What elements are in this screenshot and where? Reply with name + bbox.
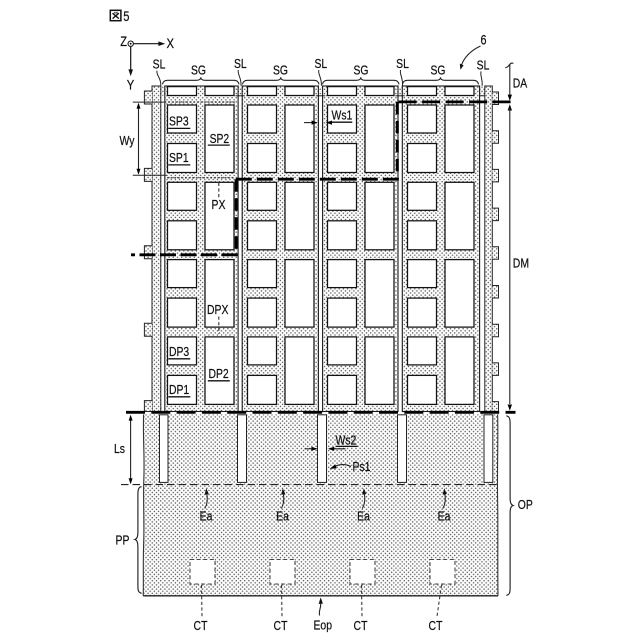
svg-text:5: 5 — [123, 8, 129, 24]
svg-text:PX: PX — [212, 197, 226, 212]
svg-text:CT: CT — [429, 618, 443, 633]
svg-text:CT: CT — [354, 618, 368, 633]
svg-text:SP1: SP1 — [169, 150, 189, 165]
svg-text:SL: SL — [153, 57, 166, 72]
svg-text:Ws2: Ws2 — [336, 432, 357, 447]
svg-text:SG: SG — [191, 63, 206, 78]
svg-text:Ps1: Ps1 — [353, 459, 371, 474]
svg-text:Ls: Ls — [114, 441, 125, 456]
svg-text:Ws1: Ws1 — [332, 108, 353, 123]
svg-text:SG: SG — [354, 63, 369, 78]
svg-text:SL: SL — [314, 56, 327, 71]
svg-text:Y: Y — [127, 77, 135, 93]
svg-text:SP2: SP2 — [210, 131, 230, 146]
svg-text:DP1: DP1 — [169, 382, 189, 397]
svg-text:DA: DA — [513, 76, 528, 91]
svg-text:SP3: SP3 — [169, 113, 189, 128]
svg-text:CT: CT — [274, 618, 288, 633]
svg-text:PP: PP — [116, 533, 130, 548]
svg-text:CT: CT — [194, 618, 208, 633]
svg-text:X: X — [167, 35, 175, 51]
svg-text:Ea: Ea — [438, 509, 451, 524]
svg-text:Ea: Ea — [357, 509, 370, 524]
svg-text:DM: DM — [513, 255, 529, 270]
svg-text:SL: SL — [477, 57, 490, 72]
svg-text:DPX: DPX — [207, 302, 229, 317]
svg-text:SL: SL — [234, 56, 247, 71]
svg-text:DP3: DP3 — [169, 344, 189, 359]
svg-text:OP: OP — [518, 497, 533, 512]
svg-text:6: 6 — [481, 32, 487, 47]
svg-text:Z: Z — [120, 33, 127, 49]
svg-text:SL: SL — [396, 56, 409, 71]
svg-text:Eop: Eop — [314, 618, 333, 633]
svg-text:Wy: Wy — [120, 133, 135, 148]
svg-text:SG: SG — [431, 63, 446, 78]
svg-text:Ea: Ea — [200, 509, 213, 524]
svg-text:DP2: DP2 — [209, 366, 229, 381]
svg-text:Ea: Ea — [276, 509, 289, 524]
svg-text:SG: SG — [273, 63, 288, 78]
